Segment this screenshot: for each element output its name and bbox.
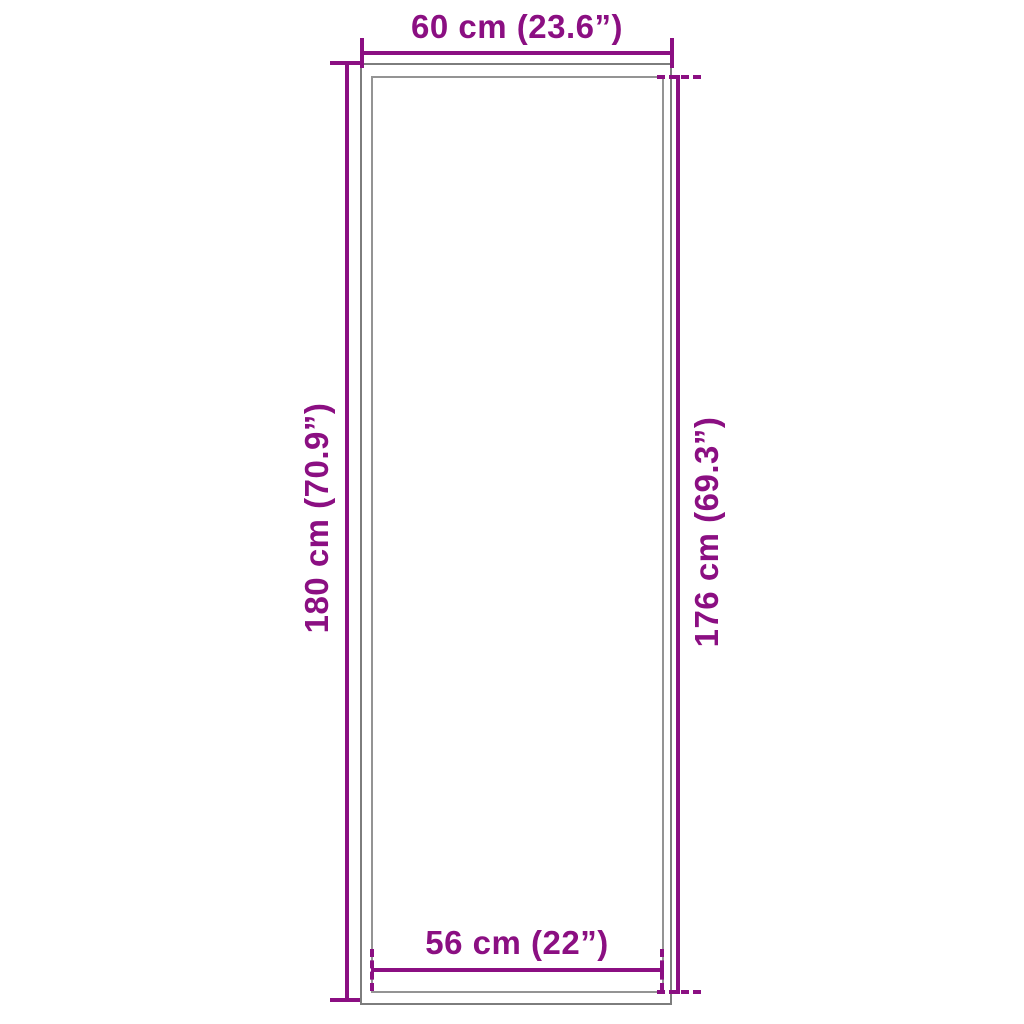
bottom-dimension-line — [371, 968, 664, 972]
right-dimension-line — [676, 75, 680, 994]
bottom-dimension-label: 56 cm (22”) — [425, 924, 608, 962]
top-dimension-tick-right — [670, 38, 674, 68]
right-dimension-label: 176 cm (69.3”) — [688, 417, 726, 648]
left-dimension-label: 180 cm (70.9”) — [298, 403, 336, 634]
left-dimension-tick-bottom — [330, 998, 360, 1002]
top-dimension-line — [360, 51, 674, 55]
dimension-diagram: 60 cm (23.6”) 180 cm (70.9”) 176 cm (69.… — [0, 0, 1024, 1024]
bottom-dimension-dashed-tick-left — [370, 949, 374, 991]
top-dimension-label: 60 cm (23.6”) — [411, 8, 623, 46]
top-dimension-tick-left — [360, 38, 364, 68]
bottom-dimension-dashed-tick-right — [660, 949, 664, 991]
left-dimension-tick-top — [330, 61, 360, 65]
left-dimension-line — [345, 61, 349, 1002]
product-outline-inner — [371, 76, 664, 993]
right-dimension-dashed-tick-top — [657, 75, 701, 79]
